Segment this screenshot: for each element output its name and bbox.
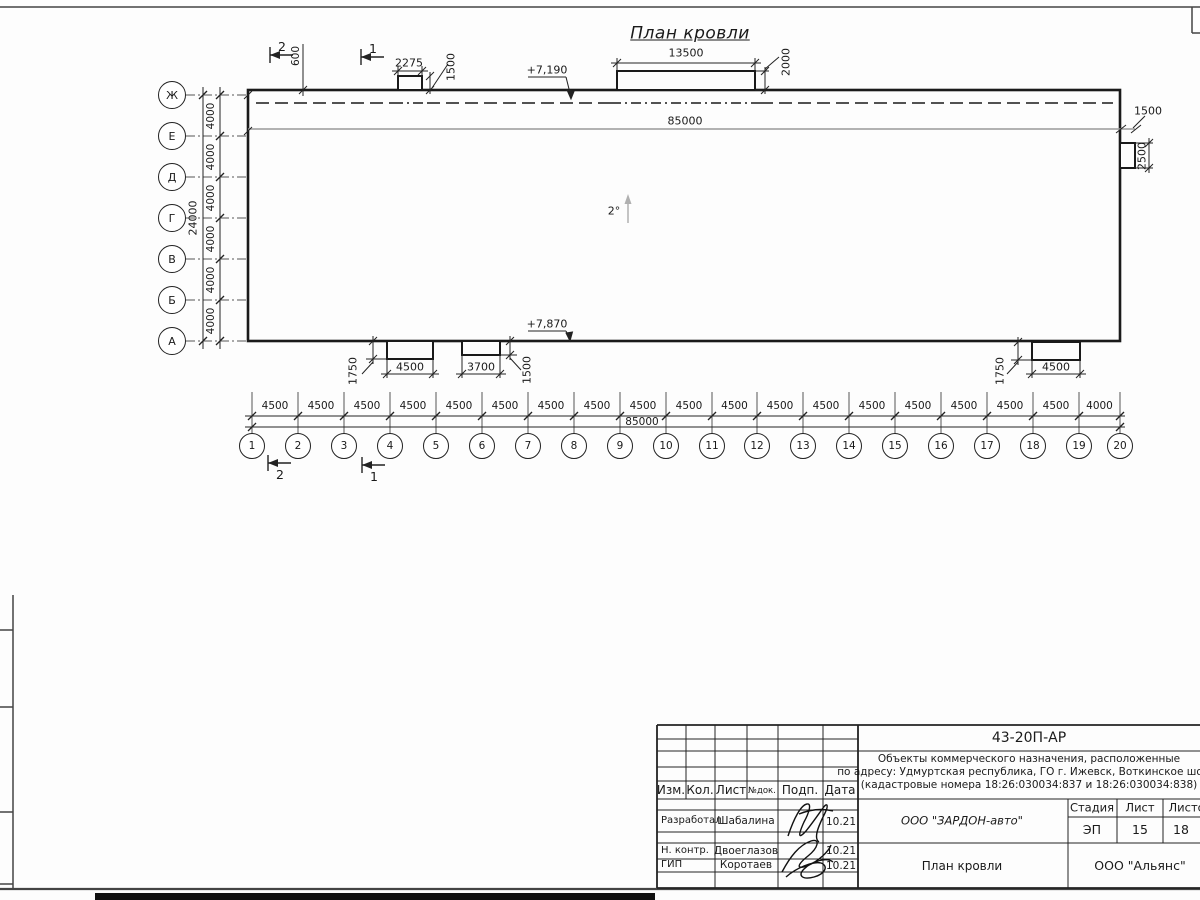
section-2-bottom-label: 2 xyxy=(276,469,284,482)
dim-a-width-label: 4500 xyxy=(396,362,424,373)
dim-b-width-label: 3700 xyxy=(467,362,495,373)
axis-spacing-horizontal: 4500 xyxy=(492,401,519,412)
role-gip: ГИП xyxy=(661,860,682,870)
axis-bubble-vertical: Д xyxy=(158,163,186,191)
slope-label: 2° xyxy=(608,206,621,217)
company-name: ООО "ЗАРДОН-авто" xyxy=(901,815,1023,827)
axis-bubble-horizontal: 4 xyxy=(377,433,403,459)
axis-spacing-horizontal: 4500 xyxy=(997,401,1024,412)
axis-spacing-horizontal: 4500 xyxy=(905,401,932,412)
axis-bubble-horizontal: 18 xyxy=(1020,433,1046,459)
axis-spacing-horizontal: 4500 xyxy=(630,401,657,412)
drawing-name-cell: План кровли xyxy=(922,860,1002,872)
axis-spacing-horizontal: 4500 xyxy=(308,401,335,412)
axis-bubble-horizontal: 10 xyxy=(653,433,679,459)
axis-spacing-horizontal: 4500 xyxy=(354,401,381,412)
total-height-left-label: 24000 xyxy=(188,201,199,236)
project-desc-line1: Объекты коммерческого назначения, распол… xyxy=(878,754,1180,765)
axis-bubble-horizontal: 12 xyxy=(744,433,770,459)
doc-number: 43-20П-АР xyxy=(992,731,1066,745)
stage-value: ЭП xyxy=(1083,824,1101,837)
axis-bubble-horizontal: 9 xyxy=(607,433,633,459)
axis-bubble-vertical: Е xyxy=(158,122,186,150)
axis-bubble-vertical: Б xyxy=(158,286,186,314)
axis-spacing-horizontal: 4500 xyxy=(813,401,840,412)
col-podp-header: Подп. xyxy=(782,784,818,796)
axis-spacing-horizontal: 4000 xyxy=(1086,401,1113,412)
axis-spacing-vertical: 4000 xyxy=(206,143,217,170)
axis-spacing-horizontal: 4500 xyxy=(859,401,886,412)
axis-spacing-vertical: 4000 xyxy=(206,266,217,293)
dimension-lines xyxy=(244,44,1153,378)
axis-spacing-horizontal: 4500 xyxy=(446,401,473,412)
sheets-header: Листов xyxy=(1169,802,1200,814)
axis-bubble-vertical: Г xyxy=(158,204,186,232)
axis-spacing-vertical: 4000 xyxy=(206,102,217,129)
date-gip: 10.21 xyxy=(826,861,856,872)
slope-arrow xyxy=(625,194,632,223)
role-ncontrol: Н. контр. xyxy=(661,846,709,856)
axis-bubble-horizontal: 1 xyxy=(239,433,265,459)
axis-spacing-vertical: 4000 xyxy=(206,225,217,252)
col-izm-header: Изм. xyxy=(657,784,685,796)
axis-bubble-horizontal: 20 xyxy=(1107,433,1133,459)
axis-spacing-horizontal: 4500 xyxy=(767,401,794,412)
axis-spacing-vertical: 4000 xyxy=(206,184,217,211)
col-kol-header: Кол. xyxy=(686,784,713,796)
contractor-name: ООО "Альянс" xyxy=(1094,860,1185,873)
axis-spacing-vertical: 4000 xyxy=(206,307,217,334)
section-1-bottom-label: 1 xyxy=(370,471,378,484)
project-desc-line2: по адресу: Удмуртская республика, ГО г. … xyxy=(837,767,1200,778)
axis-spacing-horizontal: 4500 xyxy=(584,401,611,412)
col-data-header: Дата xyxy=(824,784,855,796)
axis-bubble-horizontal: 11 xyxy=(699,433,725,459)
col-list-header: Лист xyxy=(716,784,746,796)
axis-spacing-horizontal: 4500 xyxy=(676,401,703,412)
dim-a-height-label: 1750 xyxy=(348,357,359,385)
drawing-sheet: План кровли 600 2 1 2275 1500 +7,190 135… xyxy=(0,0,1200,900)
elevation-bottom-label: +7,870 xyxy=(527,319,568,330)
dim-2275-label: 2275 xyxy=(395,58,423,69)
dim-600-label: 600 xyxy=(291,46,302,66)
sheet-value: 15 xyxy=(1132,824,1148,837)
col-ndok-header: №док. xyxy=(748,787,776,796)
axis-bubble-horizontal: 7 xyxy=(515,433,541,459)
project-desc-line3: (кадастровые номера 18:26:030034:837 и 1… xyxy=(861,780,1197,791)
name-developer: Шабалина xyxy=(717,816,774,827)
axis-bubble-horizontal: 13 xyxy=(790,433,816,459)
axis-bubble-vertical: А xyxy=(158,327,186,355)
dim-2500-right-label: 2500 xyxy=(1137,142,1148,170)
role-developer: Разработал xyxy=(661,816,722,826)
axis-bubble-horizontal: 6 xyxy=(469,433,495,459)
sheet-header: Лист xyxy=(1125,802,1154,814)
axis-bubble-vertical: В xyxy=(158,245,186,273)
axis-grid-lines xyxy=(186,87,1125,434)
dim-1500-right-label: 1500 xyxy=(1134,106,1162,117)
total-width-bottom-label: 85000 xyxy=(625,417,658,428)
axis-spacing-horizontal: 4500 xyxy=(951,401,978,412)
name-ncontrol: Двоеглазов xyxy=(714,846,778,857)
axis-spacing-horizontal: 4500 xyxy=(1043,401,1070,412)
axis-bubble-horizontal: 2 xyxy=(285,433,311,459)
axis-bubble-horizontal: 16 xyxy=(928,433,954,459)
dim-1500-top-label: 1500 xyxy=(446,53,457,81)
axis-spacing-horizontal: 4500 xyxy=(538,401,565,412)
axis-spacing-horizontal: 4500 xyxy=(262,401,289,412)
axis-bubble-horizontal: 17 xyxy=(974,433,1000,459)
drawing-title: План кровли xyxy=(630,26,749,43)
dim-13500-label: 13500 xyxy=(669,48,704,59)
dim-c-height-label: 1750 xyxy=(995,357,1006,385)
axis-spacing-horizontal: 4500 xyxy=(721,401,748,412)
dim-c-width-label: 4500 xyxy=(1042,362,1070,373)
axis-bubble-horizontal: 3 xyxy=(331,433,357,459)
section-2-top-label: 2 xyxy=(278,41,286,54)
axis-spacing-horizontal: 4500 xyxy=(400,401,427,412)
date-ncontrol: 10.21 xyxy=(826,846,856,857)
scan-artifact-bar xyxy=(95,893,655,900)
dim-2000-label: 2000 xyxy=(781,48,792,76)
axis-bubble-vertical: Ж xyxy=(158,81,186,109)
section-1-top-label: 1 xyxy=(369,43,377,56)
axis-bubble-horizontal: 5 xyxy=(423,433,449,459)
axis-bubble-horizontal: 14 xyxy=(836,433,862,459)
stage-header: Стадия xyxy=(1070,802,1114,814)
axis-bubble-horizontal: 8 xyxy=(561,433,587,459)
axis-bubble-horizontal: 15 xyxy=(882,433,908,459)
date-developer: 10.21 xyxy=(826,817,856,828)
axis-bubble-horizontal: 19 xyxy=(1066,433,1092,459)
total-width-top-label: 85000 xyxy=(668,116,703,127)
name-gip: Коротаев xyxy=(720,860,772,871)
sheets-value: 18 xyxy=(1173,824,1189,837)
dim-b-height-label: 1500 xyxy=(522,356,533,384)
elevation-top-label: +7,190 xyxy=(527,65,568,76)
